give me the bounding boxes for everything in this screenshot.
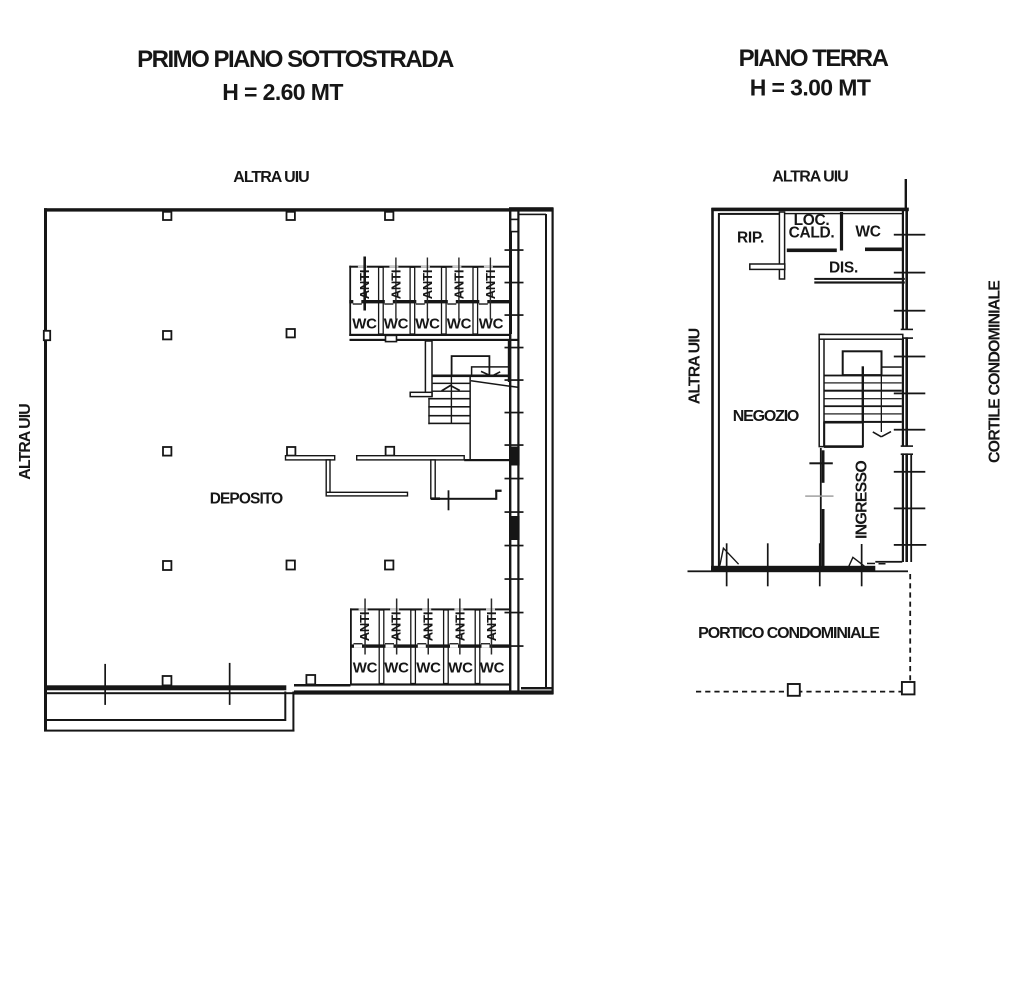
svg-text:CALD.: CALD. (789, 225, 835, 242)
svg-text:ANTI: ANTI (389, 270, 404, 300)
svg-text:WC: WC (447, 316, 472, 333)
svg-text:WC: WC (353, 660, 378, 677)
svg-text:WC: WC (480, 660, 505, 677)
svg-text:RIP.: RIP. (737, 230, 764, 247)
svg-text:DIS.: DIS. (829, 260, 858, 277)
svg-text:H = 3.00 MT: H = 3.00 MT (750, 75, 871, 101)
svg-text:ANTI: ANTI (483, 270, 498, 300)
svg-text:WC: WC (416, 660, 441, 677)
svg-text:ANTI: ANTI (357, 270, 372, 300)
svg-text:ANTI: ANTI (389, 612, 404, 642)
svg-text:ANTI: ANTI (453, 612, 468, 642)
svg-text:CORTILE CONDOMINIALE: CORTILE CONDOMINIALE (987, 280, 1004, 463)
svg-text:ALTRA UIU: ALTRA UIU (17, 404, 34, 480)
svg-text:WC: WC (384, 316, 409, 333)
svg-text:WC: WC (352, 316, 377, 333)
svg-text:ANTI: ANTI (452, 270, 467, 300)
svg-text:PORTICO CONDOMINIALE: PORTICO CONDOMINIALE (698, 625, 880, 642)
svg-text:PRIMO PIANO SOTTOSTRADA: PRIMO PIANO SOTTOSTRADA (137, 46, 454, 73)
svg-text:ANTI: ANTI (357, 612, 372, 642)
svg-text:ANTI: ANTI (420, 270, 435, 300)
svg-text:ANTI: ANTI (484, 612, 499, 642)
svg-text:ALTRA UIU: ALTRA UIU (233, 169, 309, 186)
svg-text:ANTI: ANTI (421, 612, 436, 642)
svg-text:INGRESSO: INGRESSO (854, 461, 871, 539)
svg-text:ALTRA UIU: ALTRA UIU (772, 169, 848, 186)
svg-text:ALTRA UIU: ALTRA UIU (687, 328, 704, 404)
svg-text:WC: WC (448, 660, 473, 677)
svg-text:NEGOZIO: NEGOZIO (733, 408, 799, 425)
svg-text:WC: WC (384, 660, 409, 677)
svg-text:WC: WC (855, 224, 880, 241)
svg-text:WC: WC (479, 316, 504, 333)
svg-text:DEPOSITO: DEPOSITO (210, 491, 283, 508)
svg-text:H = 2.60 MT: H = 2.60 MT (222, 79, 343, 105)
svg-text:PIANO TERRA: PIANO TERRA (739, 45, 889, 72)
svg-text:WC: WC (415, 316, 440, 333)
